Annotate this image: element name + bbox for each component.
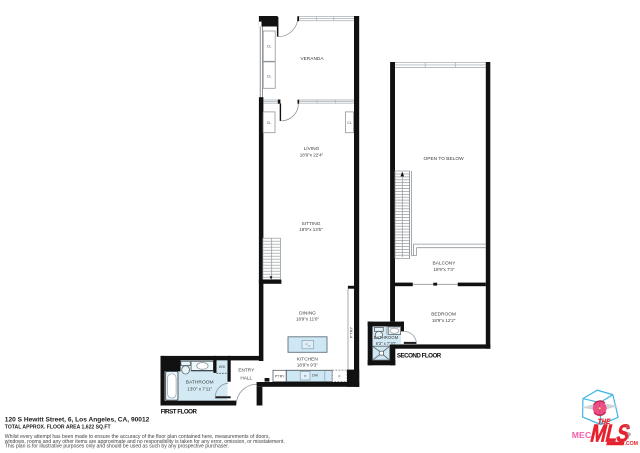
svg-text:DW: DW xyxy=(312,373,318,377)
svg-text:VERANDA: VERANDA xyxy=(300,56,324,62)
svg-text:SITTING: SITTING xyxy=(302,221,321,227)
svg-text:SECOND FLOOR: SECOND FLOOR xyxy=(397,352,442,359)
svg-text:W/D: W/D xyxy=(219,365,226,369)
svg-text:BALCONY: BALCONY xyxy=(433,260,457,266)
svg-text:.COM: .COM xyxy=(624,441,638,447)
svg-text:HALL: HALL xyxy=(240,376,252,381)
svg-text:18'9"x 9'3": 18'9"x 9'3" xyxy=(297,363,318,368)
svg-text:OPEN TO BELOW: OPEN TO BELOW xyxy=(424,156,465,162)
svg-text:18'9"x 22'4": 18'9"x 22'4" xyxy=(300,152,324,157)
svg-text:CL: CL xyxy=(267,74,271,78)
svg-text:18'9"x 13'5": 18'9"x 13'5" xyxy=(299,227,323,232)
svg-text:FIRST FLOOR: FIRST FLOOR xyxy=(161,408,198,415)
svg-text:18'9"x 7'3": 18'9"x 7'3" xyxy=(434,267,455,272)
svg-text:18'9"x 11'0": 18'9"x 11'0" xyxy=(296,316,319,321)
svg-text:CL: CL xyxy=(267,121,271,125)
svg-text:P'TRY: P'TRY xyxy=(275,374,285,378)
svg-text:6'3" x 7'10": 6'3" x 7'10" xyxy=(376,341,397,346)
svg-text:TOTAL APPROX. FLOOR AREA 1,622: TOTAL APPROX. FLOOR AREA 1,622 SQ.FT xyxy=(5,425,112,431)
svg-text:BEDROOM: BEDROOM xyxy=(431,312,456,318)
svg-text:ENTRY: ENTRY xyxy=(238,368,255,373)
svg-text:120 S Hewitt Street, 6, Los An: 120 S Hewitt Street, 6, Los Angeles, CA,… xyxy=(5,417,150,424)
svg-text:BATHROOM: BATHROOM xyxy=(186,380,214,386)
svg-text:18'9"x 12'2": 18'9"x 12'2" xyxy=(432,318,456,323)
svg-text:LIVING: LIVING xyxy=(304,146,320,152)
svg-text:TM: TM xyxy=(625,425,630,429)
svg-text:P'TRY: P'TRY xyxy=(348,326,353,338)
svg-text:13'0" x 7'11": 13'0" x 7'11" xyxy=(187,387,212,392)
svg-text:CL: CL xyxy=(347,121,351,125)
svg-text:KITCHEN: KITCHEN xyxy=(297,357,319,363)
svg-text:DINING: DINING xyxy=(299,310,316,316)
svg-text:CL: CL xyxy=(267,45,271,49)
svg-text:MEC: MEC xyxy=(572,430,592,440)
svg-text:F: F xyxy=(339,374,341,378)
svg-text:This plan is for illustrative: This plan is for illustrative purposes o… xyxy=(5,444,229,450)
svg-text:BATHROOM: BATHROOM xyxy=(374,335,399,340)
svg-text:?: ? xyxy=(626,431,631,440)
